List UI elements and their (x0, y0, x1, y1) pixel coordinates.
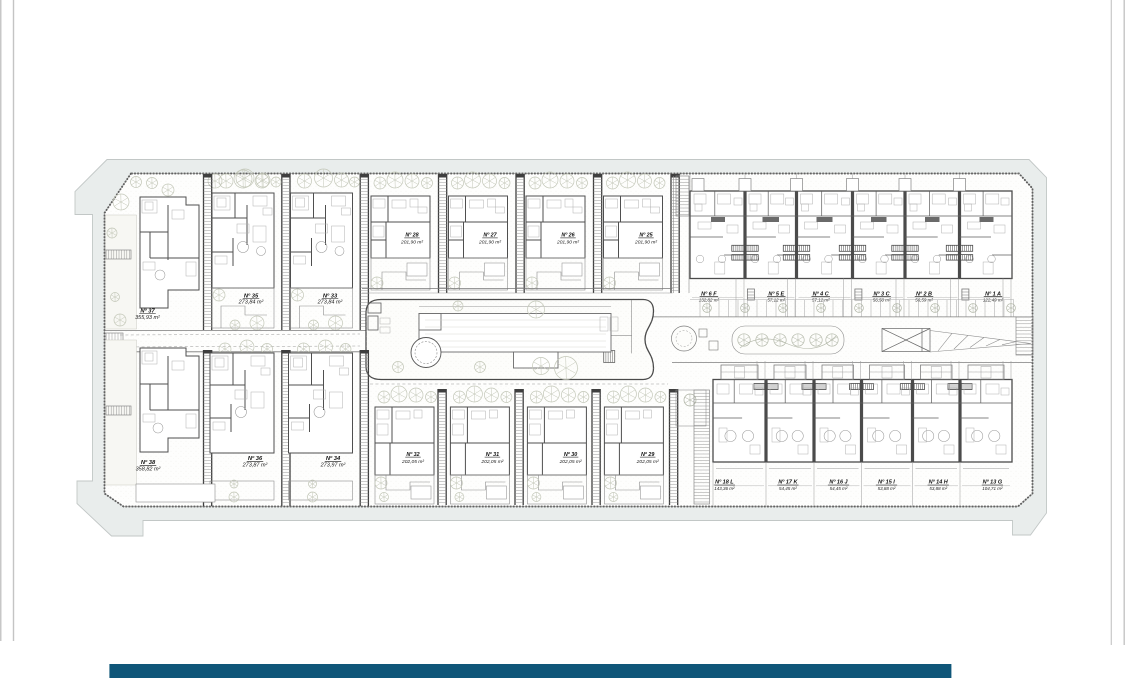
svg-text:143,36 m²: 143,36 m² (714, 486, 735, 491)
svg-text:132,82 m²: 132,82 m² (699, 298, 720, 303)
svg-text:Nº 6 F: Nº 6 F (701, 290, 717, 297)
svg-text:202,05 m²: 202,05 m² (480, 459, 503, 465)
svg-text:Nº 35: Nº 35 (244, 292, 259, 299)
svg-text:56,50 m²: 56,50 m² (873, 298, 891, 303)
svg-text:201,90 m²: 201,90 m² (634, 240, 657, 246)
svg-text:Nº 38: Nº 38 (141, 459, 156, 466)
svg-text:Nº 37: Nº 37 (140, 307, 155, 314)
svg-text:273,84 m²: 273,84 m² (317, 300, 343, 306)
svg-text:355,93 m²: 355,93 m² (135, 315, 160, 321)
svg-text:53,88 m²: 53,88 m² (929, 486, 947, 491)
svg-text:54,45 m²: 54,45 m² (779, 486, 797, 491)
svg-text:Nº 36: Nº 36 (248, 455, 263, 462)
svg-text:273,84 m²: 273,84 m² (238, 300, 264, 306)
svg-text:201,90 m²: 201,90 m² (556, 240, 579, 246)
svg-text:Nº 5 E: Nº 5 E (768, 290, 784, 297)
svg-text:Nº 13 G: Nº 13 G (983, 479, 1003, 486)
svg-text:Nº 1 A: Nº 1 A (985, 290, 1001, 297)
svg-text:201,90 m²: 201,90 m² (478, 240, 501, 246)
svg-text:202,05 m²: 202,05 m² (636, 459, 659, 465)
svg-text:104,71 m²: 104,71 m² (982, 486, 1003, 491)
svg-text:202,05 m²: 202,05 m² (401, 459, 424, 465)
svg-text:Nº 17 K: Nº 17 K (778, 479, 798, 486)
svg-text:Nº 4 C: Nº 4 C (813, 290, 830, 297)
svg-text:201,90 m²: 201,90 m² (400, 240, 423, 246)
svg-text:202,05 m²: 202,05 m² (559, 459, 582, 465)
svg-text:54,45 m²: 54,45 m² (830, 486, 848, 491)
svg-text:Nº 15 I: Nº 15 I (878, 479, 895, 486)
svg-text:273,87 m²: 273,87 m² (242, 463, 268, 469)
svg-text:Nº 3 C: Nº 3 C (874, 290, 891, 297)
svg-text:57,12 m²: 57,12 m² (767, 298, 785, 303)
svg-text:57,12 m²: 57,12 m² (812, 298, 830, 303)
svg-text:Nº 18 L: Nº 18 L (715, 479, 734, 486)
svg-text:53,88 m²: 53,88 m² (878, 486, 896, 491)
svg-text:Nº 33: Nº 33 (323, 292, 338, 299)
svg-text:Nº 2 B: Nº 2 B (916, 290, 932, 297)
svg-text:Nº 34: Nº 34 (326, 455, 341, 462)
svg-text:Nº 14 H: Nº 14 H (929, 479, 949, 486)
svg-text:Nº 16 J: Nº 16 J (829, 479, 848, 486)
svg-text:358,82 m²: 358,82 m² (136, 467, 161, 473)
svg-text:56,59 m²: 56,59 m² (915, 298, 933, 303)
svg-text:273,97 m²: 273,97 m² (320, 463, 346, 469)
svg-text:122,49 m²: 122,49 m² (983, 298, 1004, 303)
